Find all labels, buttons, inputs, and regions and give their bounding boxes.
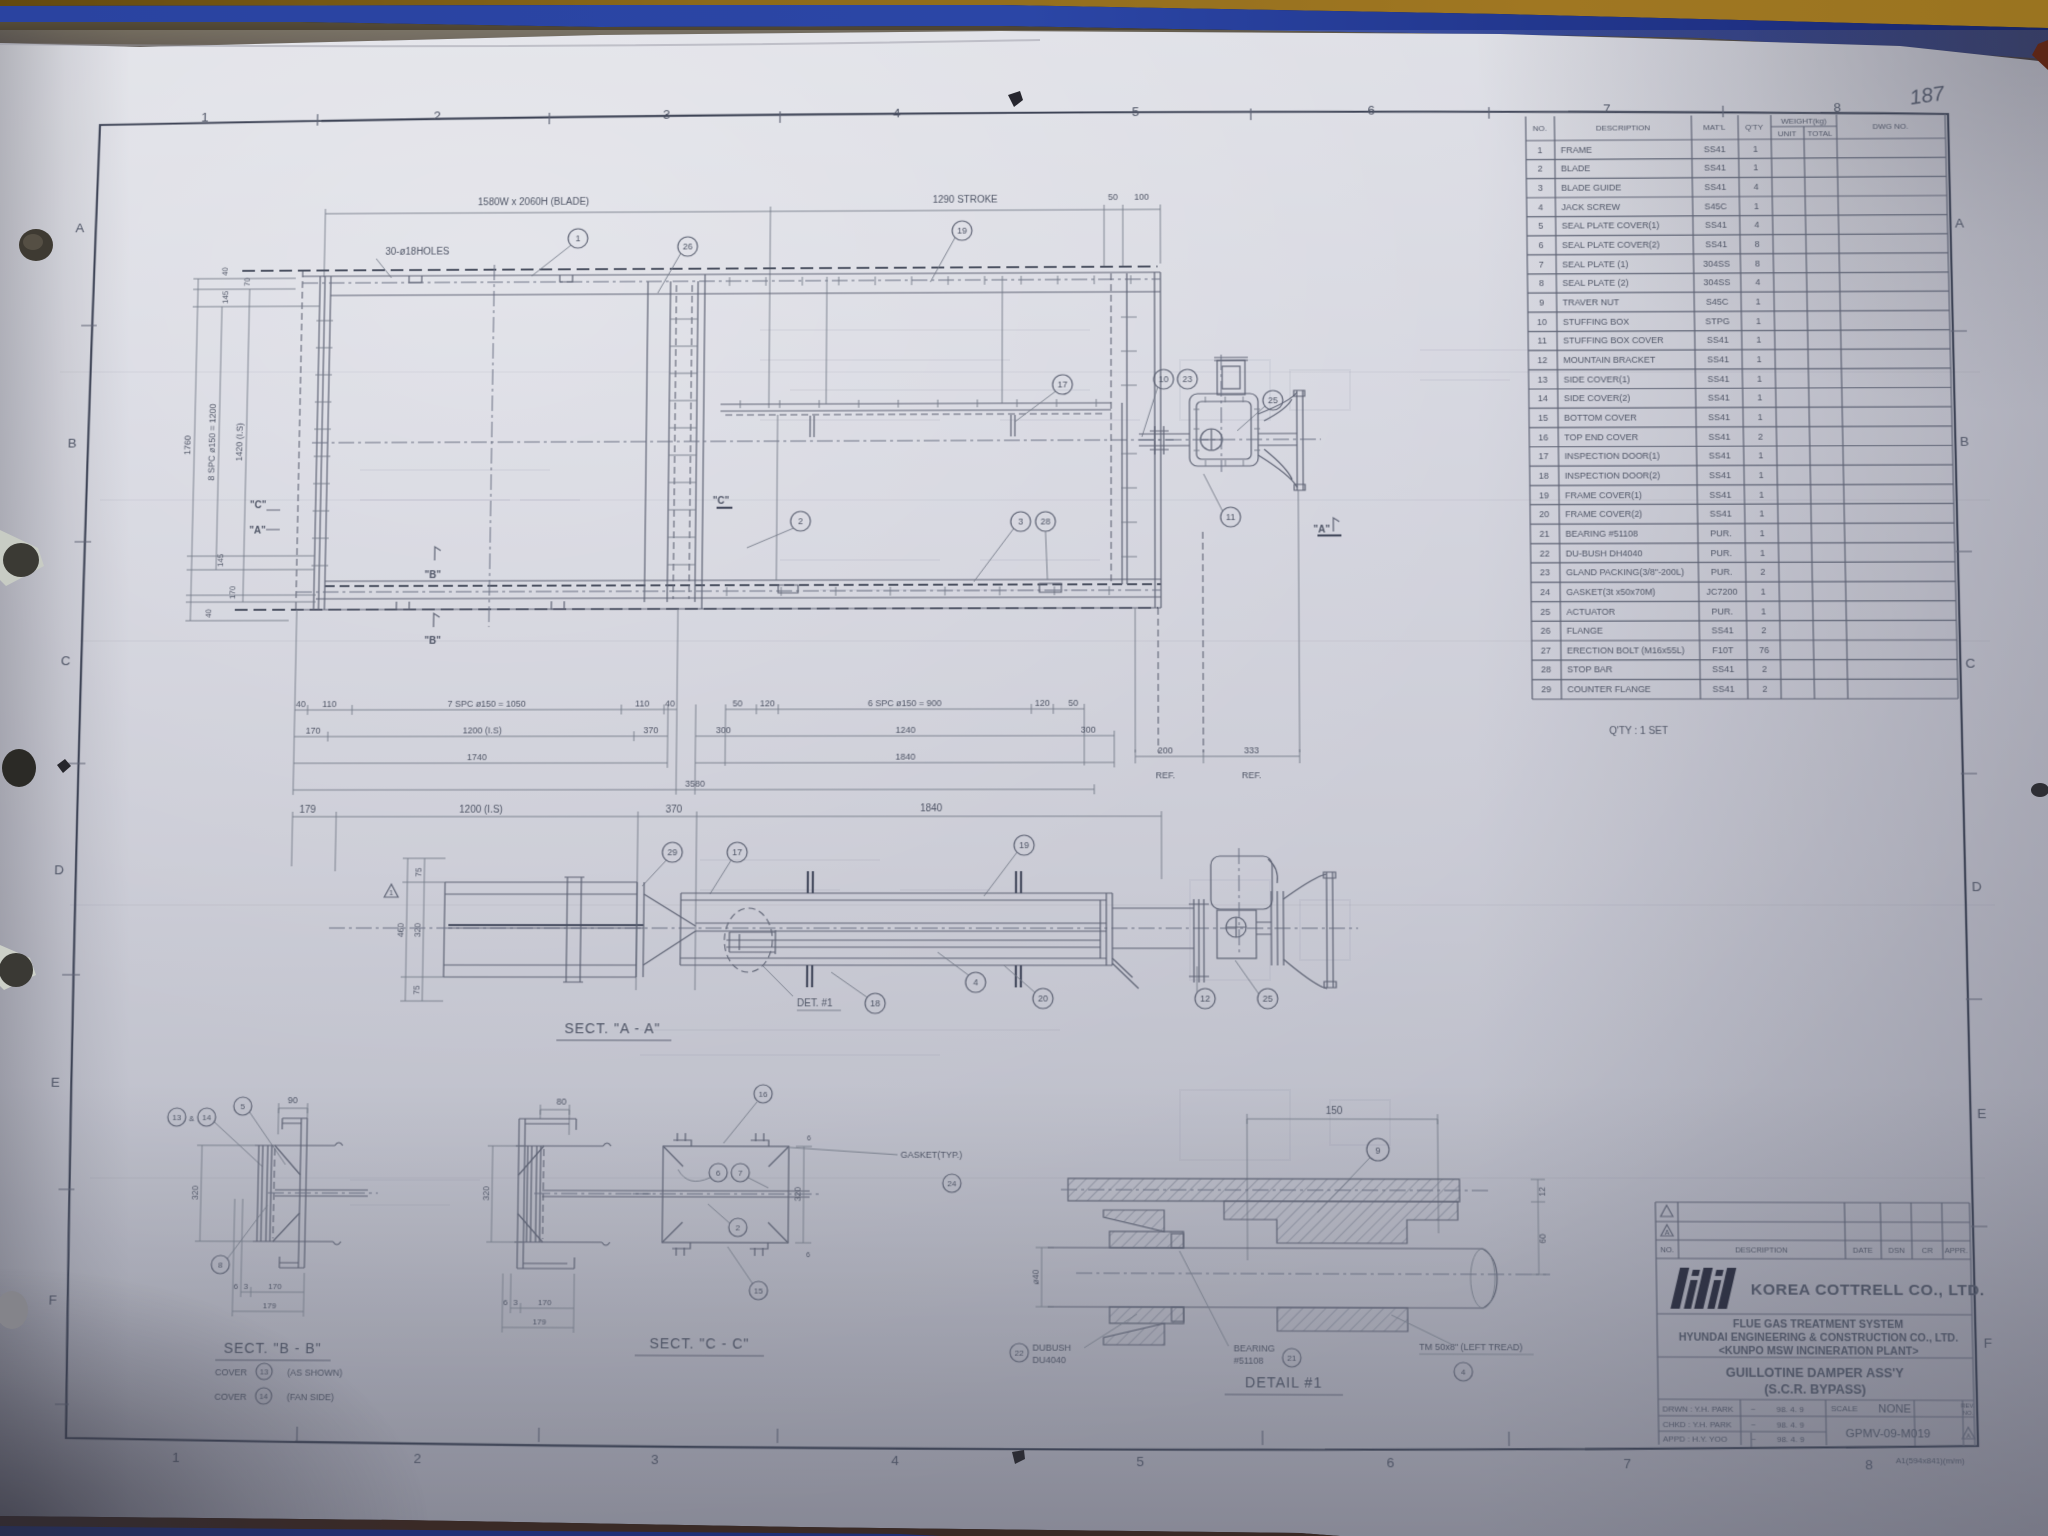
svg-text:D: D	[54, 862, 64, 877]
svg-text:SCALE: SCALE	[1831, 1404, 1858, 1414]
svg-text:SS41: SS41	[1704, 144, 1726, 154]
svg-text:SEAL PLATE (1): SEAL PLATE (1)	[1562, 259, 1628, 269]
svg-text:26: 26	[683, 241, 693, 251]
svg-text:6: 6	[1538, 240, 1543, 250]
svg-text:2: 2	[434, 108, 442, 123]
svg-text:75: 75	[414, 867, 423, 877]
svg-text:7: 7	[1623, 1455, 1631, 1471]
svg-text:GASKET(TYP.): GASKET(TYP.)	[901, 1149, 963, 1160]
svg-text:19: 19	[957, 225, 967, 235]
svg-text:8: 8	[1755, 258, 1760, 268]
svg-text:2: 2	[1762, 684, 1767, 694]
svg-text:B: B	[1960, 434, 1969, 449]
svg-text:REF.: REF.	[1156, 770, 1176, 780]
svg-text:FLUE GAS TREATMENT SYSTEM: FLUE GAS TREATMENT SYSTEM	[1733, 1319, 1904, 1331]
svg-text:12: 12	[1537, 355, 1547, 365]
svg-text:SS41: SS41	[1705, 220, 1727, 230]
svg-text:NO.: NO.	[1660, 1245, 1674, 1255]
svg-text:10: 10	[1159, 374, 1169, 384]
svg-text:1: 1	[1756, 296, 1761, 306]
svg-text:6 SPC ø150 = 900: 6 SPC ø150 = 900	[868, 698, 942, 708]
svg-text:DET. #1: DET. #1	[797, 998, 833, 1010]
svg-text:&: &	[189, 1114, 195, 1123]
svg-text:13: 13	[1538, 374, 1548, 384]
svg-text:FRAME: FRAME	[1561, 145, 1593, 155]
svg-text:MOUNTAIN BRACKET: MOUNTAIN BRACKET	[1563, 354, 1656, 365]
svg-text:24: 24	[1540, 587, 1550, 597]
svg-text:1200 (I.S): 1200 (I.S)	[463, 725, 502, 735]
svg-text:28: 28	[1541, 665, 1551, 675]
svg-text:INSPECTION DOOR(2): INSPECTION DOOR(2)	[1565, 470, 1661, 481]
svg-text:A: A	[1966, 1433, 1970, 1439]
svg-text:6: 6	[234, 1282, 239, 1292]
svg-text:SS41: SS41	[1709, 470, 1731, 480]
svg-text:1290 STROKE: 1290 STROKE	[933, 194, 998, 205]
svg-text:5: 5	[240, 1102, 245, 1111]
svg-text:1200 (I.S): 1200 (I.S)	[459, 804, 503, 815]
svg-text:75: 75	[412, 985, 422, 995]
svg-text:100: 100	[1134, 192, 1149, 202]
svg-text:DESCRIPTION: DESCRIPTION	[1596, 123, 1650, 132]
svg-text:1: 1	[1756, 316, 1761, 326]
svg-text:TM 50x8" (LEFT TREAD): TM 50x8" (LEFT TREAD)	[1419, 1341, 1523, 1352]
svg-text:200: 200	[1158, 745, 1173, 755]
svg-text:1740: 1740	[467, 752, 487, 762]
svg-text:SECT. "C - C": SECT. "C - C"	[649, 1336, 749, 1352]
svg-text:GPMV-09-M019: GPMV-09-M019	[1845, 1427, 1930, 1440]
svg-text:19: 19	[1539, 490, 1549, 500]
svg-text:7 SPC ø150 = 1050: 7 SPC ø150 = 1050	[447, 698, 526, 708]
svg-text:18: 18	[1539, 471, 1549, 481]
svg-text:179: 179	[299, 804, 316, 815]
svg-text:16: 16	[759, 1090, 768, 1099]
svg-text:3: 3	[1018, 516, 1023, 526]
svg-text:27: 27	[1541, 645, 1551, 655]
svg-text:CHKD : Y.H. PARK: CHKD : Y.H. PARK	[1663, 1420, 1733, 1430]
svg-text:PUR.: PUR.	[1711, 567, 1733, 577]
svg-text:14: 14	[1538, 393, 1548, 403]
svg-text:F: F	[48, 1292, 57, 1308]
svg-text:6: 6	[807, 1135, 811, 1142]
svg-text:SS41: SS41	[1704, 163, 1726, 173]
svg-text:SIDE COVER(2): SIDE COVER(2)	[1564, 393, 1631, 403]
svg-text:Q'TY : 1 SET: Q'TY : 1 SET	[1609, 726, 1668, 737]
svg-text:13: 13	[172, 1113, 181, 1122]
svg-text:TOP END COVER: TOP END COVER	[1564, 432, 1638, 442]
svg-text:6: 6	[806, 1252, 810, 1259]
svg-text:1420 (I.S): 1420 (I.S)	[234, 423, 245, 461]
svg-text:2: 2	[1762, 664, 1767, 674]
svg-text:NONE: NONE	[1878, 1403, 1911, 1416]
svg-text:DU4040: DU4040	[1032, 1354, 1066, 1365]
svg-text:1: 1	[1753, 163, 1758, 173]
svg-text:APPD : H.Y. YOO: APPD : H.Y. YOO	[1663, 1434, 1728, 1444]
svg-text:14: 14	[259, 1392, 268, 1402]
svg-text:1: 1	[1759, 509, 1764, 519]
svg-text:"B": "B"	[424, 570, 441, 581]
svg-text:SEAL PLATE (2): SEAL PLATE (2)	[1562, 278, 1628, 288]
svg-text:JACK SCREW: JACK SCREW	[1561, 202, 1621, 212]
svg-text:179: 179	[533, 1317, 547, 1327]
svg-text:40: 40	[665, 698, 675, 708]
svg-text:<KUNPO MSW INCINERATION PLANT>: <KUNPO MSW INCINERATION PLANT>	[1719, 1346, 1919, 1358]
svg-text:4: 4	[1754, 182, 1759, 192]
svg-text:98. 4. 9: 98. 4. 9	[1776, 1405, 1804, 1415]
svg-text:A: A	[1665, 1230, 1670, 1237]
svg-text:14: 14	[202, 1113, 212, 1122]
svg-text:1: 1	[1756, 335, 1761, 345]
svg-text:FRAME COVER(1): FRAME COVER(1)	[1565, 490, 1642, 500]
svg-text:8: 8	[1539, 278, 1544, 288]
svg-text:1: 1	[1757, 373, 1762, 383]
svg-text:GUILLOTINE DAMPER ASS'Y: GUILLOTINE DAMPER ASS'Y	[1726, 1365, 1904, 1381]
svg-text:WEIGHT(kg): WEIGHT(kg)	[1781, 116, 1827, 125]
svg-text:3: 3	[651, 1451, 659, 1467]
svg-text:9: 9	[1539, 297, 1544, 307]
svg-text:SS41: SS41	[1709, 451, 1731, 461]
svg-text:25: 25	[1263, 993, 1273, 1004]
svg-text:1: 1	[1759, 470, 1764, 480]
svg-text:21: 21	[1287, 1353, 1296, 1363]
svg-text:90: 90	[288, 1095, 298, 1105]
svg-text:12: 12	[1538, 1186, 1548, 1196]
svg-text:SS41: SS41	[1708, 431, 1730, 441]
svg-text:21: 21	[1539, 529, 1549, 539]
svg-text:170: 170	[306, 725, 321, 735]
svg-text:5: 5	[1538, 221, 1543, 231]
svg-text:9: 9	[1375, 1145, 1380, 1156]
svg-text:SECT. "A - A": SECT. "A - A"	[564, 1021, 660, 1037]
svg-text:2: 2	[736, 1223, 741, 1233]
svg-text:INSPECTION DOOR(1): INSPECTION DOOR(1)	[1564, 451, 1660, 462]
svg-text:1: 1	[575, 233, 580, 243]
svg-text:SS41: SS41	[1708, 393, 1730, 403]
svg-text:DWG NO.: DWG NO.	[1872, 122, 1908, 131]
svg-text:1: 1	[201, 110, 209, 125]
svg-text:170: 170	[538, 1298, 552, 1308]
svg-text:1: 1	[1758, 450, 1763, 460]
svg-text:29: 29	[1541, 684, 1551, 694]
svg-text:24: 24	[947, 1179, 957, 1189]
svg-text:A: A	[1955, 215, 1965, 230]
svg-text:E: E	[1977, 1105, 1987, 1121]
svg-text:22: 22	[1540, 548, 1550, 558]
svg-text:7: 7	[1539, 259, 1544, 269]
svg-text:ø40: ø40	[1031, 1269, 1041, 1284]
svg-text:1: 1	[1758, 412, 1763, 422]
svg-text:TRAVER NUT: TRAVER NUT	[1563, 297, 1620, 307]
svg-text:SS41: SS41	[1712, 664, 1735, 674]
svg-text:40: 40	[296, 699, 306, 709]
svg-text:DUBUSH: DUBUSH	[1032, 1342, 1071, 1353]
svg-text:19: 19	[1019, 840, 1029, 850]
svg-text:110: 110	[322, 699, 337, 709]
svg-text:26: 26	[1541, 626, 1551, 636]
svg-text:3580: 3580	[685, 778, 705, 788]
svg-text:ERECTION BOLT (M16x55L): ERECTION BOLT (M16x55L)	[1567, 645, 1685, 656]
svg-text:PUR.: PUR.	[1710, 547, 1732, 557]
svg-text:6: 6	[716, 1168, 721, 1178]
svg-text:460: 460	[396, 922, 406, 937]
svg-text:1760: 1760	[182, 435, 193, 455]
svg-text:50: 50	[1108, 192, 1118, 202]
svg-text:FRAME COVER(2): FRAME COVER(2)	[1565, 509, 1642, 519]
svg-text:1840: 1840	[895, 751, 915, 761]
svg-text:1: 1	[1760, 547, 1765, 557]
svg-text:COVER: COVER	[215, 1367, 247, 1378]
svg-text:4: 4	[1538, 202, 1543, 212]
svg-text:17: 17	[1538, 451, 1548, 461]
svg-text:SS41: SS41	[1708, 412, 1730, 422]
svg-text:7: 7	[1603, 101, 1611, 116]
svg-text:6: 6	[1367, 102, 1375, 117]
svg-text:S45C: S45C	[1704, 201, 1727, 211]
svg-text:15: 15	[754, 1286, 763, 1296]
svg-text:18: 18	[870, 998, 880, 1008]
svg-text:22: 22	[1015, 1348, 1024, 1358]
svg-text:40: 40	[204, 609, 213, 618]
svg-text:SS41: SS41	[1707, 335, 1729, 345]
svg-text:COVER: COVER	[214, 1391, 246, 1402]
svg-text:REF.: REF.	[1242, 770, 1262, 780]
svg-text:DSN: DSN	[1888, 1245, 1904, 1255]
svg-text:1: 1	[1753, 144, 1758, 154]
svg-text:KOREA COTTRELL CO., LTD.: KOREA COTTRELL CO., LTD.	[1751, 1282, 1985, 1300]
svg-text:~: ~	[1751, 1404, 1757, 1414]
svg-text:304SS: 304SS	[1703, 277, 1730, 287]
svg-text:15: 15	[1538, 413, 1548, 423]
svg-text:BLADE: BLADE	[1561, 164, 1591, 174]
svg-text:98. 4. 9: 98. 4. 9	[1777, 1420, 1805, 1430]
svg-text:8: 8	[1833, 100, 1841, 115]
svg-text:STUFFING BOX COVER: STUFFING BOX COVER	[1563, 335, 1664, 346]
svg-text:10: 10	[1537, 317, 1547, 327]
svg-text:COUNTER FLANGE: COUNTER FLANGE	[1567, 684, 1651, 694]
svg-text:11: 11	[1537, 336, 1547, 346]
svg-text:320: 320	[191, 1185, 201, 1200]
svg-text:DATE: DATE	[1853, 1245, 1873, 1255]
svg-text:320: 320	[482, 1186, 492, 1201]
svg-text:13: 13	[260, 1367, 269, 1377]
svg-text:GASKET(3t x50x70M): GASKET(3t x50x70M)	[1566, 587, 1656, 598]
svg-text:16: 16	[1538, 432, 1548, 442]
svg-text:12: 12	[1200, 993, 1210, 1003]
svg-text:SS41: SS41	[1707, 354, 1729, 364]
svg-text:25: 25	[1268, 395, 1278, 405]
svg-text:2: 2	[413, 1450, 421, 1466]
svg-text:1: 1	[172, 1449, 180, 1465]
svg-text:APPR.: APPR.	[1944, 1246, 1967, 1256]
svg-text:HYUNDAI ENGINEERING & CONSTRUC: HYUNDAI ENGINEERING & CONSTRUCTION CO., …	[1679, 1332, 1959, 1345]
svg-text:NO.: NO.	[1533, 124, 1547, 133]
svg-text:FLANGE: FLANGE	[1567, 626, 1604, 636]
svg-text:UNIT: UNIT	[1778, 129, 1797, 138]
svg-text:BOTTOM COVER: BOTTOM COVER	[1564, 412, 1637, 422]
svg-text:"C": "C"	[713, 496, 730, 507]
svg-text:300: 300	[716, 725, 731, 735]
svg-text:3: 3	[513, 1298, 518, 1308]
svg-text:A: A	[75, 220, 85, 235]
svg-text:50: 50	[733, 698, 743, 708]
svg-text:300: 300	[1081, 724, 1096, 734]
svg-text:80: 80	[556, 1096, 566, 1107]
svg-text:"B": "B"	[424, 636, 441, 647]
svg-text:320: 320	[793, 1186, 803, 1201]
svg-text:370: 370	[665, 804, 682, 815]
svg-text:70: 70	[243, 278, 252, 287]
svg-text:SIDE COVER(1): SIDE COVER(1)	[1563, 374, 1630, 384]
svg-text:SS41: SS41	[1712, 684, 1735, 694]
svg-text:SS41: SS41	[1710, 509, 1732, 519]
svg-text:17: 17	[732, 847, 742, 857]
svg-text:23: 23	[1540, 567, 1550, 577]
svg-text:170: 170	[268, 1282, 282, 1292]
svg-text:1: 1	[1537, 145, 1542, 155]
svg-text:120: 120	[760, 698, 775, 708]
svg-text:Q'TY: Q'TY	[1745, 123, 1763, 132]
svg-text:30-ø18HOLES: 30-ø18HOLES	[385, 246, 449, 257]
svg-text:110: 110	[635, 698, 650, 708]
svg-text:7: 7	[738, 1168, 743, 1178]
svg-text:6: 6	[1387, 1454, 1395, 1470]
svg-text:BLADE GUIDE: BLADE GUIDE	[1561, 182, 1621, 192]
svg-text:120: 120	[1035, 698, 1050, 708]
svg-text:1: 1	[1757, 393, 1762, 403]
svg-text:25: 25	[1540, 606, 1550, 616]
svg-text:2: 2	[1758, 431, 1763, 441]
svg-text:MAT'L: MAT'L	[1703, 123, 1726, 132]
svg-text:40: 40	[220, 267, 229, 276]
svg-text:"C": "C"	[250, 500, 267, 511]
svg-text:SS41: SS41	[1709, 489, 1731, 499]
svg-text:2: 2	[1760, 567, 1765, 577]
svg-text:17: 17	[1058, 379, 1068, 389]
svg-text:F10T: F10T	[1712, 645, 1734, 655]
svg-text:145: 145	[216, 554, 225, 567]
svg-text:98. 4. 9: 98. 4. 9	[1777, 1435, 1805, 1445]
svg-text:(S.C.R. BYPASS): (S.C.R. BYPASS)	[1764, 1382, 1866, 1397]
svg-text:DESCRIPTION: DESCRIPTION	[1735, 1245, 1788, 1255]
svg-text:4: 4	[893, 105, 900, 120]
svg-text:23: 23	[1182, 374, 1192, 384]
svg-text:179: 179	[263, 1301, 277, 1311]
svg-text:1: 1	[1760, 528, 1765, 538]
svg-text:1: 1	[1761, 606, 1766, 616]
svg-text:SS41: SS41	[1705, 239, 1727, 249]
svg-text:4: 4	[1755, 277, 1760, 287]
svg-text:#51108: #51108	[1234, 1355, 1264, 1366]
svg-text:76: 76	[1759, 645, 1769, 655]
svg-text:1840: 1840	[920, 803, 942, 814]
svg-text:5: 5	[1136, 1453, 1144, 1469]
svg-text:370: 370	[643, 725, 658, 735]
svg-text:~: ~	[1751, 1420, 1757, 1430]
svg-text:PUR.: PUR.	[1710, 528, 1732, 538]
svg-text:5: 5	[1132, 104, 1139, 119]
svg-text:~: ~	[1751, 1434, 1757, 1444]
svg-text:C: C	[61, 653, 71, 668]
svg-text:28: 28	[1041, 516, 1051, 526]
svg-text:SS41: SS41	[1707, 373, 1729, 383]
svg-text:150: 150	[1326, 1106, 1343, 1118]
svg-text:SECT. "B - B": SECT. "B - B"	[224, 1340, 322, 1356]
svg-text:8: 8	[1865, 1456, 1873, 1472]
svg-text:DU-BUSH DH4040: DU-BUSH DH4040	[1566, 548, 1643, 558]
svg-text:DETAIL #1: DETAIL #1	[1245, 1375, 1322, 1391]
svg-text:STPG: STPG	[1705, 316, 1730, 326]
svg-text:STUFFING BOX: STUFFING BOX	[1563, 316, 1630, 326]
svg-text:(FAN SIDE): (FAN SIDE)	[287, 1392, 334, 1403]
svg-text:320: 320	[413, 922, 423, 937]
svg-text:1: 1	[1759, 489, 1764, 499]
svg-text:11: 11	[1226, 512, 1236, 522]
svg-text:4: 4	[891, 1452, 899, 1468]
svg-text:1: 1	[1757, 354, 1762, 364]
svg-text:BEARING: BEARING	[1234, 1343, 1276, 1354]
svg-text:60: 60	[1538, 1233, 1548, 1243]
svg-text:PUR.: PUR.	[1711, 606, 1733, 616]
svg-text:4: 4	[1461, 1367, 1466, 1377]
svg-text:3: 3	[1538, 183, 1543, 193]
svg-text:DRWN : Y.H. PARK: DRWN : Y.H. PARK	[1662, 1404, 1734, 1414]
svg-text:20: 20	[1038, 993, 1048, 1003]
svg-text:CR: CR	[1922, 1246, 1933, 1256]
svg-text:SEAL PLATE COVER(2): SEAL PLATE COVER(2)	[1562, 240, 1660, 251]
svg-text:(AS SHOWN): (AS SHOWN)	[287, 1367, 342, 1378]
svg-text:20: 20	[1539, 509, 1549, 519]
svg-text:C: C	[1965, 655, 1975, 671]
svg-text:NO.: NO.	[1962, 1411, 1974, 1418]
svg-text:SEAL PLATE COVER(1): SEAL PLATE COVER(1)	[1562, 220, 1660, 231]
svg-text:S45C: S45C	[1706, 297, 1729, 307]
svg-text:8: 8	[218, 1260, 223, 1270]
svg-text:1580W x 2060H (BLADE): 1580W x 2060H (BLADE)	[478, 197, 589, 209]
svg-text:REV.: REV.	[1961, 1403, 1975, 1410]
svg-text:E: E	[51, 1074, 61, 1090]
svg-text:GLAND PACKING(3/8"-200L): GLAND PACKING(3/8"-200L)	[1566, 567, 1685, 578]
svg-text:2: 2	[1761, 625, 1766, 635]
svg-text:145: 145	[221, 291, 230, 304]
svg-text:304SS: 304SS	[1703, 258, 1730, 268]
svg-text:2: 2	[1538, 164, 1543, 174]
svg-text:29: 29	[667, 847, 677, 857]
svg-text:1: 1	[389, 890, 393, 897]
svg-text:SS41: SS41	[1704, 182, 1726, 192]
svg-text:STOP BAR: STOP BAR	[1567, 665, 1613, 675]
svg-text:1: 1	[1761, 586, 1766, 596]
svg-text:"A": "A"	[1313, 524, 1330, 535]
svg-text:ACTUATOR: ACTUATOR	[1566, 606, 1615, 616]
svg-text:3: 3	[663, 107, 671, 122]
svg-text:4: 4	[973, 977, 978, 987]
svg-text:F: F	[1984, 1335, 1993, 1351]
svg-text:8 SPC ø150 = 1200: 8 SPC ø150 = 1200	[206, 404, 218, 481]
svg-text:1240: 1240	[896, 725, 916, 735]
svg-text:8: 8	[1755, 239, 1760, 249]
svg-text:3: 3	[244, 1282, 249, 1292]
svg-text:A1(594x841)(m/m): A1(594x841)(m/m)	[1896, 1456, 1965, 1466]
svg-text:333: 333	[1244, 745, 1259, 755]
svg-text:1: 1	[1754, 201, 1759, 211]
svg-text:SS41: SS41	[1711, 625, 1734, 635]
svg-text:JC7200: JC7200	[1706, 586, 1738, 596]
svg-text:4: 4	[1754, 220, 1759, 230]
svg-text:B: B	[68, 435, 77, 450]
svg-text:50: 50	[1068, 698, 1078, 708]
svg-text:BEARING #51108: BEARING #51108	[1565, 528, 1638, 538]
svg-text:6: 6	[503, 1298, 508, 1308]
svg-text:170: 170	[228, 586, 238, 599]
